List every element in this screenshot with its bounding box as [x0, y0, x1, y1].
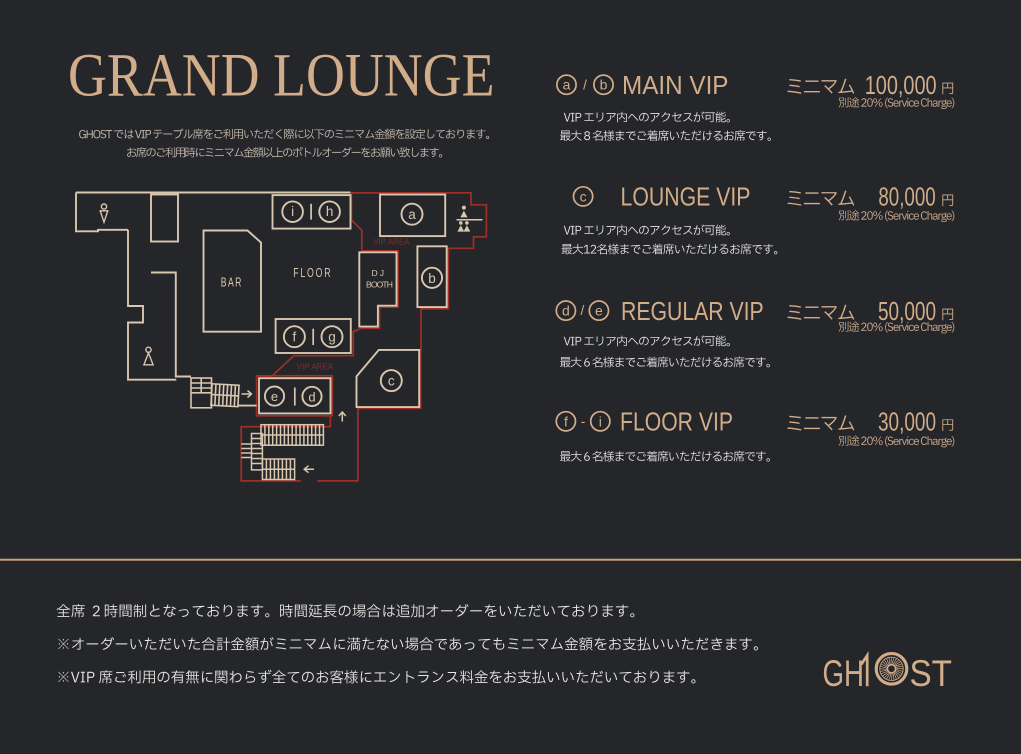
- svg-text:LOUNGE VIP: LOUNGE VIP: [621, 182, 751, 212]
- svg-text:50,000: 50,000: [878, 296, 936, 326]
- svg-text:b: b: [428, 271, 436, 286]
- svg-text:i: i: [599, 413, 602, 429]
- svg-text:d: d: [562, 303, 570, 319]
- svg-text:f: f: [293, 330, 297, 345]
- svg-text:/: /: [581, 303, 585, 318]
- svg-text:FLOOR: FLOOR: [293, 266, 332, 280]
- svg-text:FLOOR VIP: FLOOR VIP: [620, 407, 733, 437]
- svg-text:e: e: [595, 303, 603, 319]
- svg-text:MAIN VIP: MAIN VIP: [622, 70, 729, 100]
- svg-text:100,000: 100,000: [865, 70, 937, 100]
- svg-text:BAR: BAR: [221, 276, 243, 290]
- svg-text:g: g: [328, 330, 336, 345]
- svg-text:VIP AREA: VIP AREA: [373, 237, 410, 246]
- svg-text:h: h: [326, 204, 334, 219]
- svg-text:d: d: [308, 389, 315, 404]
- svg-text:c: c: [580, 188, 587, 204]
- svg-text:GRAND LOUNGE: GRAND LOUNGE: [68, 43, 495, 110]
- svg-text:30,000: 30,000: [878, 407, 936, 437]
- svg-text:a: a: [563, 77, 571, 93]
- svg-text:f: f: [564, 413, 568, 429]
- svg-text:REGULAR VIP: REGULAR VIP: [621, 296, 764, 326]
- svg-text:c: c: [388, 374, 395, 389]
- svg-text:VIP AREA: VIP AREA: [297, 363, 334, 372]
- svg-text:e: e: [271, 389, 278, 404]
- svg-text:b: b: [600, 77, 608, 93]
- svg-text:/: /: [583, 77, 587, 92]
- svg-text:i: i: [291, 204, 294, 219]
- svg-text:80,000: 80,000: [878, 182, 935, 212]
- svg-text:ST: ST: [910, 652, 953, 694]
- svg-text:BOOTH: BOOTH: [366, 279, 393, 289]
- svg-text:a: a: [408, 207, 416, 222]
- svg-text:-: -: [581, 413, 586, 429]
- svg-text:GH: GH: [823, 652, 865, 694]
- svg-text:DJ: DJ: [372, 268, 385, 278]
